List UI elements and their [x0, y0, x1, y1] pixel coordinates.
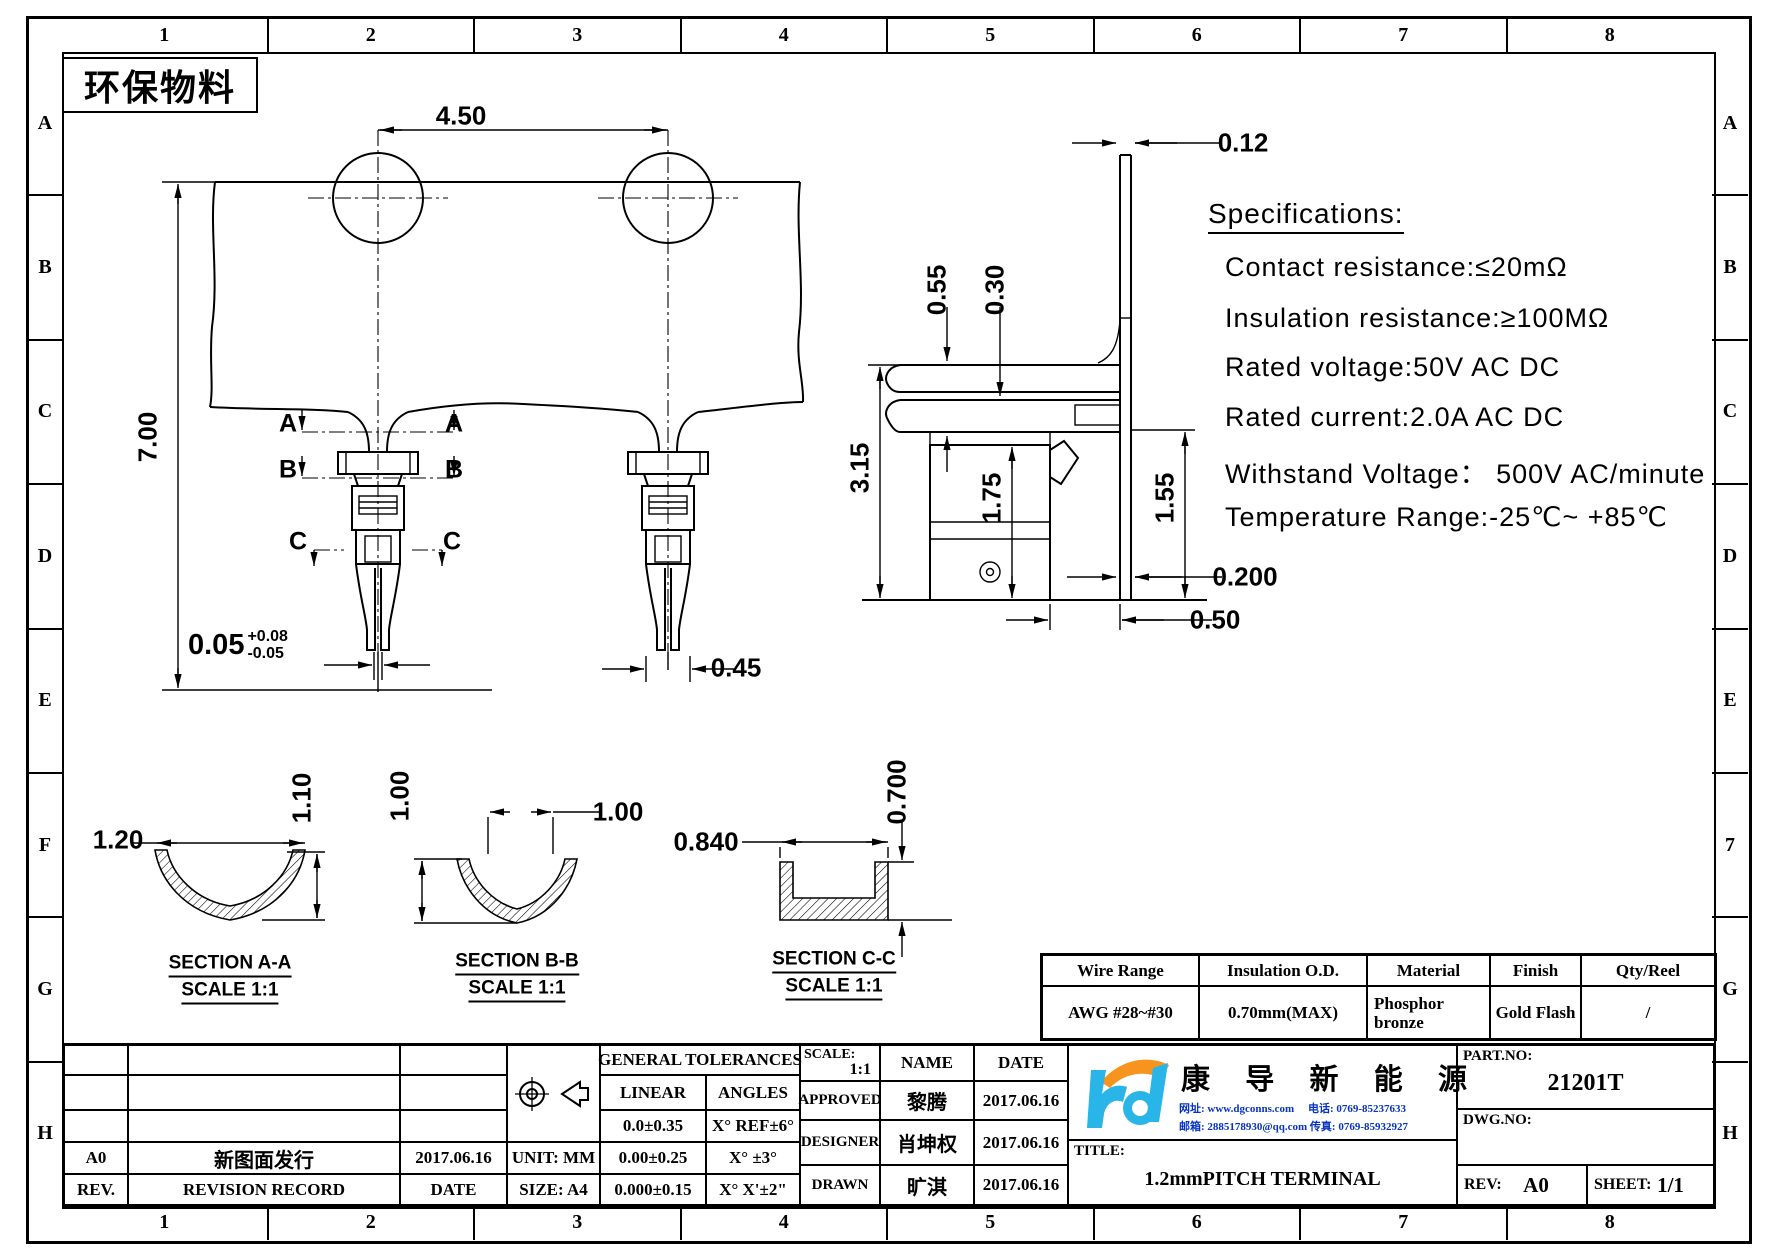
company-logo-cell: 康 导 新 能 源 网址: www.dgconns.com 电话: 0769-8… [1068, 1045, 1457, 1140]
scale-label: SCALE: [804, 1047, 855, 1063]
section-views [132, 812, 952, 957]
dim-0200-label: 0.200 [1212, 562, 1277, 593]
revision-record-header: REVISION RECORD [128, 1174, 400, 1205]
scale-cell: SCALE: 1:1 [800, 1045, 880, 1081]
grid-col-label: 6 [1093, 1205, 1300, 1240]
grid-col-label: 4 [680, 1205, 887, 1240]
size-label: SIZE: A4 [507, 1174, 600, 1205]
dim-155-label: 1.55 [1150, 473, 1181, 524]
wire-spec-table: Wire Range Insulation O.D. Material Fini… [1040, 953, 1717, 1041]
grid-col-label: 5 [886, 18, 1093, 52]
dim-315-label: 3.15 [845, 443, 876, 494]
designer-date: 2017.06.16 [974, 1120, 1068, 1165]
finish-header: Finish [1490, 955, 1581, 986]
grid-row-label: A [28, 52, 62, 194]
dim-tip-plus: +0.08 [247, 628, 287, 645]
angles-header: ANGLES [706, 1075, 800, 1110]
drawing-title: 1.2mmPITCH TERMINAL [1144, 1168, 1380, 1191]
revision-empty-cell [64, 1075, 128, 1110]
revision-empty-cell [400, 1075, 507, 1110]
revision-empty-cell [64, 1045, 128, 1075]
grid-row-label: 7 [1712, 772, 1748, 916]
grid-row-label: G [28, 916, 62, 1060]
grid-col-label: 7 [1299, 1205, 1506, 1240]
company-name: 康 导 新 能 源 [1181, 1056, 1481, 1098]
grid-col-label: 2 [267, 1205, 474, 1240]
angle-tolerance-3: X° X'±2" [706, 1174, 800, 1205]
rev-cell: REV: A0 [1457, 1165, 1587, 1205]
section-c-title: SECTION C-C [772, 949, 896, 974]
section-b-title: SECTION B-B [455, 951, 579, 976]
insulation-od-header: Insulation O.D. [1199, 955, 1367, 986]
revision-empty-cell [400, 1045, 507, 1075]
angle-tolerance-1: X° REF±6° [706, 1110, 800, 1142]
grid-row-label: F [28, 772, 62, 916]
rev-value: A0 [1523, 1173, 1549, 1198]
engineering-drawing-page: 1 2 3 4 5 6 7 8 1 2 3 4 5 6 7 8 A B C D … [0, 0, 1778, 1257]
part-no-cell: PART.NO: 21201T [1457, 1045, 1714, 1109]
grid-col-label: 1 [62, 18, 267, 52]
dwg-no-cell: DWG.NO: [1457, 1109, 1714, 1165]
section-marker-b-right: B [445, 456, 463, 485]
grid-row-label: D [1712, 483, 1748, 627]
dim-leg-label: 0.45 [711, 653, 762, 684]
section-marker-a-left: A [279, 410, 297, 439]
projection-symbol-cell [507, 1045, 600, 1142]
rev-label: REV: [1464, 1176, 1502, 1194]
grid-row-label: A [1712, 52, 1748, 194]
section-marker-c-left: C [289, 528, 307, 557]
grid-col-label: 4 [680, 18, 887, 52]
dim-pitch-label: 4.50 [436, 101, 487, 132]
title-cell: TITLE: 1.2mmPITCH TERMINAL [1068, 1140, 1457, 1205]
company-logo-icon [1083, 1052, 1173, 1132]
spec-withstand-voltage: Withstand Voltage： 500V AC/minute [1225, 452, 1705, 491]
section-a-height-label: 1.10 [287, 773, 318, 824]
dim-175-label: 1.75 [977, 473, 1008, 524]
revision-date: 2017.06.16 [400, 1142, 507, 1174]
grid-row-label: E [1712, 628, 1748, 772]
title-label: TITLE: [1074, 1143, 1125, 1160]
dim-height-label: 7.00 [133, 412, 164, 463]
unit-label: UNIT: MM [507, 1142, 600, 1174]
dim-050-label: 0.50 [1190, 605, 1241, 636]
insulation-od-value: 0.70mm(MAX) [1199, 986, 1367, 1039]
grid-row-label: B [28, 194, 62, 338]
linear-header: LINEAR [600, 1075, 706, 1110]
grid-col-label: 8 [1506, 1205, 1713, 1240]
sheet-value: 1/1 [1657, 1173, 1684, 1198]
grid-row-label: H [28, 1061, 62, 1205]
grid-col-label: 2 [267, 18, 474, 52]
spec-rated-current: Rated current:2.0A AC DC [1225, 402, 1564, 433]
section-c-scale: SCALE 1:1 [785, 976, 882, 1001]
section-marker-c-right: C [443, 528, 461, 557]
revision-rev-value: A0 [64, 1142, 128, 1174]
revision-empty-cell [400, 1110, 507, 1142]
approved-label: APPROVED [800, 1081, 880, 1120]
grid-row-label: H [1712, 1061, 1748, 1205]
linear-tolerance-2: 0.00±0.25 [600, 1142, 706, 1174]
dim-030-label: 0.30 [980, 265, 1011, 316]
specifications-title: Specifications: [1208, 198, 1404, 234]
qty-reel-value: / [1581, 986, 1715, 1039]
section-a-title: SECTION A-A [169, 953, 292, 978]
section-b-scale: SCALE 1:1 [468, 978, 565, 1003]
grid-row-label: E [28, 628, 62, 772]
qty-reel-header: Qty/Reel [1581, 955, 1715, 986]
section-a-scale: SCALE 1:1 [181, 980, 278, 1005]
side-view [862, 143, 1222, 630]
general-tolerances-title: GENERAL TOLERANCES [600, 1045, 800, 1075]
grid-col-label: 7 [1299, 18, 1506, 52]
dim-tip-tolerance: +0.08 -0.05 [247, 628, 287, 662]
grid-ruler-bottom: 1 2 3 4 5 6 7 8 [62, 1205, 1712, 1240]
part-no-value: 21201T [1547, 1070, 1623, 1097]
name-header: NAME [880, 1045, 974, 1081]
company-contact-line1: 网址: www.dgconns.com 电话: 0769-85237633 [1179, 1100, 1406, 1116]
revision-empty-cell [128, 1110, 400, 1142]
approved-date: 2017.06.16 [974, 1081, 1068, 1120]
grid-col-label: 3 [473, 18, 680, 52]
dim-tip-value: 0.05 [188, 629, 244, 662]
angle-tolerance-2: X° ±3° [706, 1142, 800, 1174]
third-angle-projection-icon [514, 1074, 594, 1114]
linear-tolerance-1: 0.0±0.35 [600, 1110, 706, 1142]
spec-insulation-resistance: Insulation resistance:≥100MΩ [1225, 303, 1609, 334]
revision-empty-cell [128, 1045, 400, 1075]
wire-range-header: Wire Range [1042, 955, 1199, 986]
section-b-height-label: 1.00 [385, 771, 416, 822]
grid-col-label: 6 [1093, 18, 1300, 52]
grid-ruler-right: A B C D E 7 G H [1712, 52, 1748, 1205]
linear-tolerance-3: 0.000±0.15 [600, 1174, 706, 1205]
grid-row-label: D [28, 483, 62, 627]
grid-ruler-top: 1 2 3 4 5 6 7 8 [62, 18, 1712, 52]
wire-range-value: AWG #28~#30 [1042, 986, 1199, 1039]
spec-temperature-range: Temperature Range:-25℃~ +85℃ [1225, 502, 1668, 533]
dim-055-label: 0.55 [922, 265, 953, 316]
revision-description: 新图面发行 [128, 1142, 400, 1174]
company-contact-line2: 邮箱: 2885178930@qq.com 传真: 0769-85932927 [1179, 1118, 1408, 1134]
grid-row-label: G [1712, 916, 1748, 1060]
title-block: GENERAL TOLERANCES LINEAR ANGLES 0.0±0.3… [62, 1043, 1716, 1207]
revision-empty-cell [64, 1110, 128, 1142]
drawn-name: 旷淇 [880, 1165, 974, 1205]
sheet-label: SHEET: [1594, 1176, 1652, 1194]
grid-col-label: 8 [1506, 18, 1713, 52]
rev-header: REV. [64, 1174, 128, 1205]
grid-col-label: 3 [473, 1205, 680, 1240]
front-view [162, 130, 803, 692]
sheet-cell: SHEET: 1/1 [1587, 1165, 1714, 1205]
dim-tip-label: 0.05 +0.08 -0.05 [188, 628, 288, 662]
section-c-height-label: 0.700 [882, 759, 913, 824]
spec-contact-resistance: Contact resistance:≤20mΩ [1225, 252, 1568, 283]
drawn-label: DRAWN [800, 1165, 880, 1205]
finish-value: Gold Flash [1490, 986, 1581, 1039]
section-c-width-label: 0.840 [673, 827, 738, 858]
approved-name: 黎腾 [880, 1081, 974, 1120]
grid-row-label: B [1712, 194, 1748, 338]
revision-empty-cell [128, 1075, 400, 1110]
grid-col-label: 5 [886, 1205, 1093, 1240]
dwg-no-label: DWG.NO: [1463, 1112, 1532, 1129]
grid-col-label: 1 [62, 1205, 267, 1240]
part-no-label: PART.NO: [1463, 1048, 1532, 1065]
material-header: Material [1367, 955, 1490, 986]
spec-rated-voltage: Rated voltage:50V AC DC [1225, 352, 1560, 383]
dim-thickness-label: 0.12 [1218, 128, 1269, 159]
grid-ruler-left: A B C D E F G H [28, 52, 62, 1205]
date-header-approvals: DATE [974, 1045, 1068, 1081]
grid-row-label: C [28, 339, 62, 483]
designer-name: 肖坤权 [880, 1120, 974, 1165]
material-value: Phosphor bronze [1367, 986, 1490, 1039]
designer-label: DESIGNER [800, 1120, 880, 1165]
date-header: DATE [400, 1174, 507, 1205]
section-marker-a-right: A [445, 410, 463, 439]
section-marker-b-left: B [279, 456, 297, 485]
section-a-width-label: 1.20 [93, 825, 144, 856]
dim-tip-minus: -0.05 [247, 645, 287, 662]
section-b-width-label: 1.00 [593, 797, 644, 828]
grid-row-label: C [1712, 339, 1748, 483]
drawn-date: 2017.06.16 [974, 1165, 1068, 1205]
scale-value: 1:1 [850, 1061, 871, 1079]
